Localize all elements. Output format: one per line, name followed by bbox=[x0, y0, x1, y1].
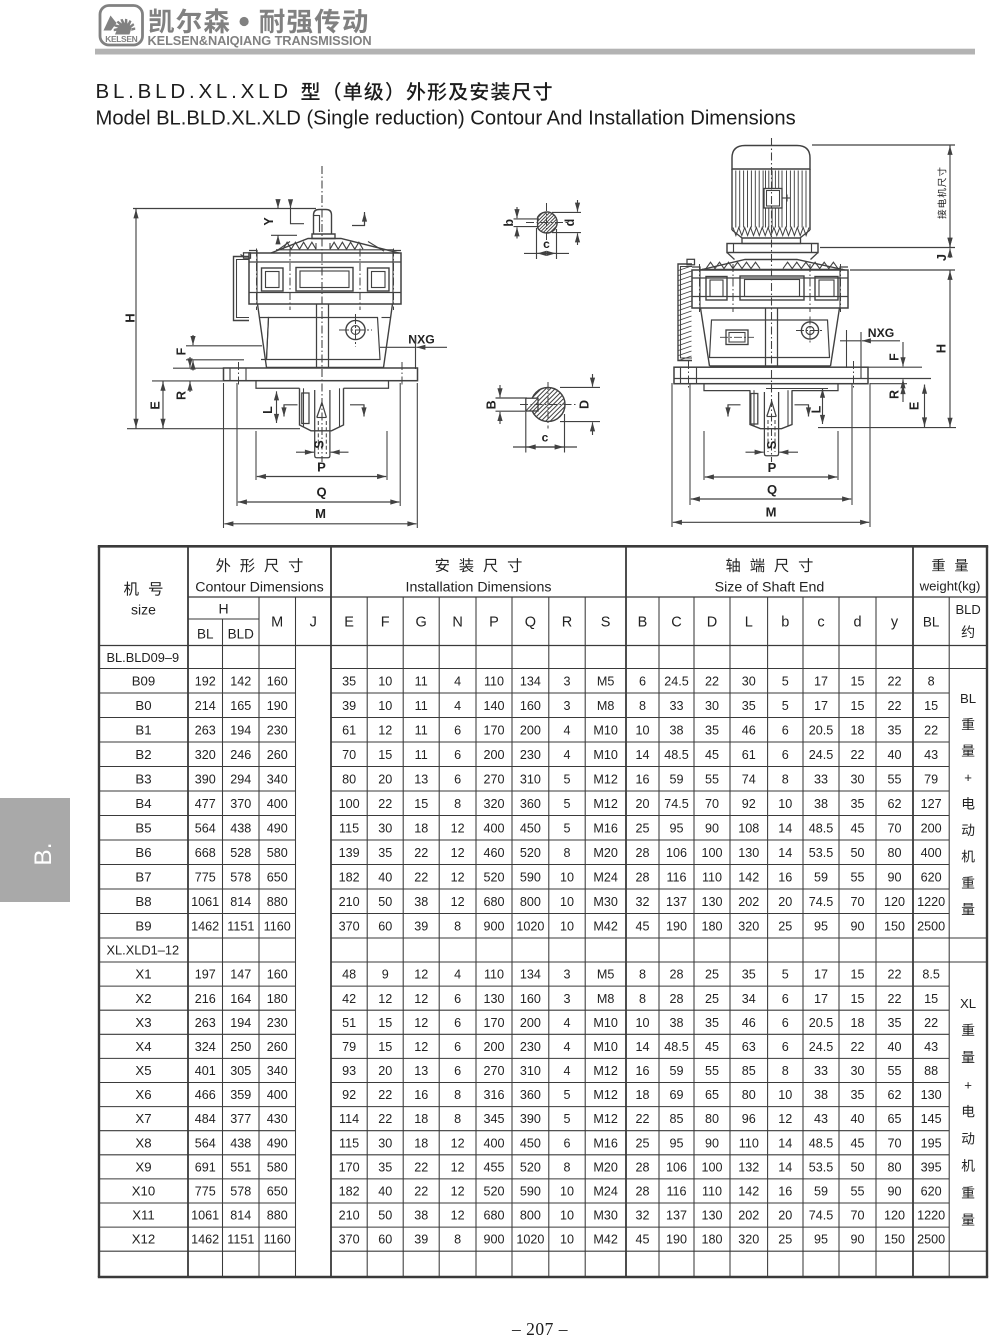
svg-text:45: 45 bbox=[635, 1233, 649, 1247]
svg-text:160: 160 bbox=[267, 674, 288, 688]
svg-text:8: 8 bbox=[782, 772, 789, 786]
svg-text:E: E bbox=[344, 615, 354, 631]
svg-text:M16: M16 bbox=[593, 1136, 618, 1150]
svg-text:N: N bbox=[452, 615, 462, 631]
svg-text:43: 43 bbox=[924, 1040, 938, 1054]
svg-text:M12: M12 bbox=[593, 772, 618, 786]
svg-text:13: 13 bbox=[414, 1064, 428, 1078]
svg-text:79: 79 bbox=[924, 772, 938, 786]
svg-text:B2: B2 bbox=[135, 747, 151, 762]
svg-text:130: 130 bbox=[738, 846, 759, 860]
svg-text:9: 9 bbox=[382, 968, 389, 982]
svg-text:55: 55 bbox=[705, 1064, 719, 1078]
svg-text:477: 477 bbox=[195, 797, 216, 811]
svg-text:10: 10 bbox=[635, 1016, 649, 1030]
svg-text:8: 8 bbox=[639, 699, 646, 713]
svg-text:590: 590 bbox=[520, 870, 541, 884]
svg-text:190: 190 bbox=[267, 699, 288, 713]
svg-text:520: 520 bbox=[520, 1160, 541, 1174]
svg-text:110: 110 bbox=[484, 968, 504, 982]
svg-text:5: 5 bbox=[782, 968, 789, 982]
svg-text:30: 30 bbox=[850, 772, 864, 786]
svg-text:5: 5 bbox=[782, 674, 789, 688]
svg-text:194: 194 bbox=[230, 1016, 251, 1030]
svg-text:+: + bbox=[964, 770, 972, 785]
svg-text:45: 45 bbox=[705, 1040, 719, 1054]
svg-text:127: 127 bbox=[921, 797, 942, 811]
svg-text:39: 39 bbox=[414, 1233, 428, 1247]
svg-text:40: 40 bbox=[378, 1185, 392, 1199]
svg-text:59: 59 bbox=[814, 870, 828, 884]
svg-text:D: D bbox=[578, 400, 592, 409]
svg-text:15: 15 bbox=[850, 992, 864, 1006]
svg-text:230: 230 bbox=[267, 723, 288, 737]
svg-text:B: B bbox=[638, 615, 648, 631]
svg-text:160: 160 bbox=[520, 992, 541, 1006]
svg-text:370: 370 bbox=[230, 797, 251, 811]
svg-text:25: 25 bbox=[635, 1136, 649, 1150]
svg-text:40: 40 bbox=[378, 870, 392, 884]
svg-text:22: 22 bbox=[924, 723, 938, 737]
svg-text:2500: 2500 bbox=[917, 1233, 945, 1247]
svg-text:6: 6 bbox=[454, 723, 461, 737]
svg-text:150: 150 bbox=[884, 919, 905, 933]
svg-text:28: 28 bbox=[635, 1160, 649, 1174]
svg-text:14: 14 bbox=[778, 1160, 792, 1174]
svg-text:X10: X10 bbox=[132, 1184, 155, 1199]
svg-text:38: 38 bbox=[669, 723, 683, 737]
svg-text:200: 200 bbox=[520, 1016, 541, 1030]
svg-text:6: 6 bbox=[454, 748, 461, 762]
svg-text:61: 61 bbox=[342, 723, 356, 737]
svg-text:110: 110 bbox=[484, 674, 504, 688]
svg-text:Size of Shaft End: Size of Shaft End bbox=[715, 580, 825, 596]
svg-text:46: 46 bbox=[742, 1016, 756, 1030]
svg-text:B1: B1 bbox=[135, 722, 151, 737]
svg-text:15: 15 bbox=[924, 992, 938, 1006]
svg-text:130: 130 bbox=[701, 1209, 722, 1223]
svg-text:70: 70 bbox=[850, 895, 864, 909]
svg-text:BL: BL bbox=[960, 691, 976, 706]
svg-text:182: 182 bbox=[339, 870, 360, 884]
svg-text:580: 580 bbox=[267, 846, 288, 860]
svg-text:528: 528 bbox=[230, 846, 251, 860]
svg-text:P: P bbox=[489, 615, 499, 631]
svg-text:200: 200 bbox=[520, 723, 541, 737]
svg-text:weight(kg): weight(kg) bbox=[919, 579, 981, 594]
svg-text:200: 200 bbox=[483, 1040, 504, 1054]
svg-text:M10: M10 bbox=[593, 1016, 618, 1030]
svg-text:460: 460 bbox=[483, 846, 504, 860]
svg-text:814: 814 bbox=[230, 895, 251, 909]
svg-text:L: L bbox=[745, 615, 753, 631]
svg-text:X2: X2 bbox=[135, 991, 151, 1006]
svg-text:M: M bbox=[271, 615, 283, 631]
svg-text:35: 35 bbox=[887, 1016, 901, 1030]
svg-text:90: 90 bbox=[705, 1136, 719, 1150]
svg-text:M20: M20 bbox=[593, 1160, 618, 1174]
svg-text:12: 12 bbox=[414, 968, 428, 982]
svg-text:4: 4 bbox=[563, 1064, 570, 1078]
svg-text:95: 95 bbox=[669, 821, 683, 835]
svg-text:50: 50 bbox=[850, 1160, 864, 1174]
svg-text:1220: 1220 bbox=[917, 1209, 945, 1223]
svg-text:10: 10 bbox=[560, 1233, 574, 1247]
svg-text:14: 14 bbox=[778, 821, 792, 835]
svg-text:35: 35 bbox=[850, 797, 864, 811]
svg-text:Q: Q bbox=[316, 485, 326, 500]
svg-text:400: 400 bbox=[483, 821, 504, 835]
svg-text:59: 59 bbox=[669, 1064, 683, 1078]
svg-text:490: 490 bbox=[267, 821, 288, 835]
svg-text:484: 484 bbox=[195, 1112, 216, 1126]
svg-text:R: R bbox=[888, 390, 902, 399]
svg-text:79: 79 bbox=[342, 1040, 356, 1054]
svg-text:96: 96 bbox=[742, 1112, 756, 1126]
svg-text:30: 30 bbox=[850, 1064, 864, 1078]
svg-text:95: 95 bbox=[669, 1136, 683, 1150]
svg-text:400: 400 bbox=[483, 1136, 504, 1150]
svg-text:6: 6 bbox=[454, 992, 461, 1006]
svg-text:430: 430 bbox=[267, 1112, 288, 1126]
svg-text:45: 45 bbox=[850, 1136, 864, 1150]
svg-text:38: 38 bbox=[669, 1016, 683, 1030]
svg-text:20: 20 bbox=[778, 1209, 792, 1223]
svg-text:S: S bbox=[765, 441, 779, 449]
svg-text:BL.BLD09–9: BL.BLD09–9 bbox=[107, 650, 180, 665]
svg-text:145: 145 bbox=[921, 1112, 942, 1126]
svg-text:45: 45 bbox=[850, 821, 864, 835]
svg-text:197: 197 bbox=[195, 968, 216, 982]
svg-text:210: 210 bbox=[339, 895, 360, 909]
svg-text:20.5: 20.5 bbox=[809, 723, 834, 737]
svg-text:P: P bbox=[317, 460, 326, 475]
svg-text:24.5: 24.5 bbox=[809, 748, 834, 762]
svg-text:93: 93 bbox=[342, 1064, 356, 1078]
svg-text:580: 580 bbox=[267, 1160, 288, 1174]
svg-text:4: 4 bbox=[454, 674, 461, 688]
svg-text:24.5: 24.5 bbox=[664, 674, 689, 688]
svg-text:10: 10 bbox=[560, 1209, 574, 1223]
svg-text:45: 45 bbox=[705, 748, 719, 762]
svg-text:294: 294 bbox=[230, 772, 251, 786]
svg-text:48.5: 48.5 bbox=[809, 1136, 834, 1150]
svg-text:11: 11 bbox=[415, 699, 428, 713]
svg-text:M8: M8 bbox=[597, 992, 615, 1006]
svg-text:800: 800 bbox=[520, 895, 541, 909]
svg-text:Model BL.BLD.XL.XLD (Single re: Model BL.BLD.XL.XLD (Single reduction) C… bbox=[96, 108, 796, 130]
svg-text:1220: 1220 bbox=[917, 895, 945, 909]
svg-text:22: 22 bbox=[887, 968, 901, 982]
svg-text:22: 22 bbox=[705, 674, 719, 688]
svg-text:4: 4 bbox=[563, 723, 570, 737]
svg-text:520: 520 bbox=[520, 846, 541, 860]
svg-text:110: 110 bbox=[702, 1185, 722, 1199]
svg-text:30: 30 bbox=[378, 821, 392, 835]
svg-text:35: 35 bbox=[742, 699, 756, 713]
svg-text:10: 10 bbox=[560, 870, 574, 884]
svg-text:114: 114 bbox=[339, 1112, 359, 1126]
svg-text:246: 246 bbox=[230, 748, 251, 762]
svg-text:43: 43 bbox=[814, 1112, 828, 1126]
svg-text:214: 214 bbox=[195, 699, 216, 713]
svg-text:BL: BL bbox=[923, 615, 940, 630]
svg-text:43: 43 bbox=[924, 748, 938, 762]
svg-text:22: 22 bbox=[850, 1040, 864, 1054]
svg-text:18: 18 bbox=[414, 1112, 428, 1126]
svg-text:48.5: 48.5 bbox=[809, 821, 834, 835]
svg-text:370: 370 bbox=[339, 919, 360, 933]
svg-text:137: 137 bbox=[666, 1209, 687, 1223]
svg-text:25: 25 bbox=[705, 968, 719, 982]
svg-text:5: 5 bbox=[563, 1112, 570, 1126]
svg-text:20: 20 bbox=[635, 797, 649, 811]
svg-text:55: 55 bbox=[887, 772, 901, 786]
svg-text:61: 61 bbox=[742, 748, 756, 762]
svg-text:55: 55 bbox=[887, 1064, 901, 1078]
svg-text:14: 14 bbox=[778, 1136, 792, 1150]
svg-text:377: 377 bbox=[230, 1112, 251, 1126]
svg-text:6: 6 bbox=[782, 1040, 789, 1054]
svg-text:6: 6 bbox=[782, 992, 789, 1006]
svg-text:90: 90 bbox=[850, 919, 864, 933]
svg-text:KELSEN&NAIQIANG TRANSMISSION: KELSEN&NAIQIANG TRANSMISSION bbox=[148, 33, 372, 48]
svg-text:359: 359 bbox=[230, 1088, 251, 1102]
svg-text:310: 310 bbox=[520, 1064, 541, 1078]
svg-text:10: 10 bbox=[560, 919, 574, 933]
svg-text:620: 620 bbox=[921, 1185, 942, 1199]
svg-text:130: 130 bbox=[921, 1088, 942, 1102]
svg-text:13: 13 bbox=[414, 772, 428, 786]
svg-text:J: J bbox=[310, 615, 317, 631]
svg-text:320: 320 bbox=[738, 919, 759, 933]
svg-text:880: 880 bbox=[267, 1209, 288, 1223]
svg-text:100: 100 bbox=[339, 797, 360, 811]
svg-text:L: L bbox=[261, 406, 275, 414]
svg-text:20.5: 20.5 bbox=[809, 1016, 834, 1030]
svg-text:180: 180 bbox=[701, 1233, 722, 1247]
svg-text:70: 70 bbox=[850, 1209, 864, 1223]
svg-text:– 207 –: – 207 – bbox=[511, 1319, 568, 1339]
svg-text:16: 16 bbox=[635, 772, 649, 786]
svg-text:60: 60 bbox=[378, 1233, 392, 1247]
svg-text:92: 92 bbox=[742, 797, 756, 811]
svg-text:M12: M12 bbox=[593, 1112, 618, 1126]
svg-text:46: 46 bbox=[742, 723, 756, 737]
svg-text:14: 14 bbox=[635, 1040, 649, 1054]
svg-text:15: 15 bbox=[378, 748, 392, 762]
svg-text:38: 38 bbox=[814, 1088, 828, 1102]
svg-text:263: 263 bbox=[195, 723, 216, 737]
svg-text:40: 40 bbox=[887, 1040, 901, 1054]
svg-text:6: 6 bbox=[454, 772, 461, 786]
svg-text:B.: B. bbox=[30, 842, 57, 865]
svg-text:85: 85 bbox=[669, 1112, 683, 1126]
svg-text:25: 25 bbox=[778, 1233, 792, 1247]
svg-text:17: 17 bbox=[814, 992, 828, 1006]
svg-text:8: 8 bbox=[454, 919, 461, 933]
svg-text:6: 6 bbox=[454, 1064, 461, 1078]
svg-text:12: 12 bbox=[451, 1209, 465, 1223]
svg-text:270: 270 bbox=[483, 1064, 504, 1078]
svg-text:340: 340 bbox=[267, 1064, 288, 1078]
svg-text:70: 70 bbox=[887, 821, 901, 835]
svg-text:74.5: 74.5 bbox=[809, 895, 834, 909]
svg-text:1020: 1020 bbox=[516, 1233, 544, 1247]
svg-text:d: d bbox=[563, 219, 577, 227]
svg-text:10: 10 bbox=[635, 723, 649, 737]
svg-text:115: 115 bbox=[339, 1136, 359, 1150]
svg-text:395: 395 bbox=[921, 1160, 942, 1174]
svg-text:B8: B8 bbox=[135, 894, 151, 909]
svg-text:775: 775 bbox=[195, 1185, 216, 1199]
svg-text:Y: Y bbox=[262, 217, 276, 226]
svg-text:8: 8 bbox=[454, 797, 461, 811]
svg-text:5: 5 bbox=[563, 821, 570, 835]
svg-text:22: 22 bbox=[850, 748, 864, 762]
svg-text:12: 12 bbox=[414, 992, 428, 1006]
svg-text:Contour Dimensions: Contour Dimensions bbox=[195, 580, 324, 596]
svg-text:M30: M30 bbox=[593, 895, 618, 909]
svg-text:305: 305 bbox=[230, 1064, 251, 1078]
svg-text:4: 4 bbox=[454, 699, 461, 713]
svg-text:XL.XLD1–12: XL.XLD1–12 bbox=[107, 942, 180, 957]
svg-text:22: 22 bbox=[414, 870, 428, 884]
svg-text:270: 270 bbox=[483, 772, 504, 786]
svg-text:139: 139 bbox=[339, 846, 360, 860]
svg-text:80: 80 bbox=[742, 1088, 756, 1102]
svg-text:15: 15 bbox=[924, 699, 938, 713]
svg-text:520: 520 bbox=[483, 1185, 504, 1199]
svg-text:6: 6 bbox=[639, 674, 646, 688]
svg-text:51: 51 bbox=[342, 1016, 356, 1030]
svg-text:680: 680 bbox=[483, 895, 504, 909]
svg-text:74.5: 74.5 bbox=[809, 1209, 834, 1223]
svg-text:12: 12 bbox=[778, 1112, 792, 1126]
svg-text:142: 142 bbox=[738, 1185, 759, 1199]
svg-text:2500: 2500 bbox=[917, 919, 945, 933]
svg-text:35: 35 bbox=[342, 674, 356, 688]
svg-text:110: 110 bbox=[739, 1136, 759, 1150]
svg-text:1020: 1020 bbox=[516, 919, 544, 933]
svg-text:33: 33 bbox=[814, 1064, 828, 1078]
svg-text:6: 6 bbox=[782, 723, 789, 737]
svg-text:NXG: NXG bbox=[868, 326, 894, 340]
svg-text:Q: Q bbox=[767, 482, 777, 497]
svg-text:450: 450 bbox=[520, 821, 541, 835]
svg-text:M30: M30 bbox=[593, 1209, 618, 1223]
svg-text:X4: X4 bbox=[135, 1039, 151, 1054]
svg-text:12: 12 bbox=[451, 846, 465, 860]
svg-text:92: 92 bbox=[342, 1088, 356, 1102]
svg-text:11: 11 bbox=[415, 748, 428, 762]
svg-text:62: 62 bbox=[887, 1088, 901, 1102]
svg-text:310: 310 bbox=[520, 772, 541, 786]
svg-text:D: D bbox=[707, 615, 717, 631]
svg-text:10: 10 bbox=[778, 1088, 792, 1102]
svg-text:115: 115 bbox=[339, 821, 359, 835]
svg-text:32: 32 bbox=[635, 1209, 649, 1223]
svg-text:90: 90 bbox=[887, 1185, 901, 1199]
svg-text:40: 40 bbox=[850, 1112, 864, 1126]
svg-text:22: 22 bbox=[414, 1185, 428, 1199]
svg-text:M: M bbox=[766, 505, 777, 520]
svg-text:12: 12 bbox=[378, 723, 392, 737]
svg-text:B3: B3 bbox=[135, 771, 151, 786]
svg-text:668: 668 bbox=[195, 846, 216, 860]
svg-text:1061: 1061 bbox=[191, 1209, 219, 1223]
svg-text:28: 28 bbox=[669, 968, 683, 982]
svg-text:B6: B6 bbox=[135, 845, 151, 860]
svg-text:35: 35 bbox=[378, 1160, 392, 1174]
svg-text:900: 900 bbox=[483, 919, 504, 933]
svg-text:250: 250 bbox=[230, 1040, 251, 1054]
svg-text:230: 230 bbox=[520, 748, 541, 762]
svg-text:401: 401 bbox=[195, 1064, 216, 1078]
svg-text:22: 22 bbox=[378, 1088, 392, 1102]
svg-text:390: 390 bbox=[520, 1112, 541, 1126]
svg-text:25: 25 bbox=[635, 821, 649, 835]
svg-text:65: 65 bbox=[705, 1088, 719, 1102]
svg-text:28: 28 bbox=[669, 992, 683, 1006]
svg-text:88: 88 bbox=[924, 1064, 938, 1078]
svg-text:32: 32 bbox=[635, 895, 649, 909]
svg-text:15: 15 bbox=[414, 797, 428, 811]
svg-text:170: 170 bbox=[339, 1160, 360, 1174]
svg-text:80: 80 bbox=[887, 1160, 901, 1174]
svg-text:M42: M42 bbox=[593, 919, 618, 933]
svg-text:G: G bbox=[416, 615, 427, 631]
svg-text:1160: 1160 bbox=[264, 1233, 291, 1247]
svg-text:60: 60 bbox=[378, 919, 392, 933]
svg-text:192: 192 bbox=[195, 674, 216, 688]
svg-text:320: 320 bbox=[483, 797, 504, 811]
svg-text:35: 35 bbox=[742, 968, 756, 982]
svg-text:12: 12 bbox=[378, 992, 392, 1006]
svg-text:30: 30 bbox=[378, 1136, 392, 1150]
svg-text:80: 80 bbox=[705, 1112, 719, 1126]
svg-text:69: 69 bbox=[669, 1088, 683, 1102]
svg-text:400: 400 bbox=[267, 1088, 288, 1102]
svg-text:455: 455 bbox=[483, 1160, 504, 1174]
svg-text:11: 11 bbox=[415, 674, 428, 688]
svg-text:34: 34 bbox=[742, 992, 756, 1006]
svg-text:70: 70 bbox=[705, 797, 719, 811]
svg-text:45: 45 bbox=[635, 919, 649, 933]
svg-text:120: 120 bbox=[884, 895, 905, 909]
svg-text:200: 200 bbox=[921, 821, 942, 835]
svg-text:190: 190 bbox=[666, 919, 687, 933]
svg-text:650: 650 bbox=[267, 870, 288, 884]
svg-text:B7: B7 bbox=[135, 869, 151, 884]
svg-text:B9: B9 bbox=[135, 918, 151, 933]
svg-text:M42: M42 bbox=[593, 1233, 618, 1247]
svg-text:18: 18 bbox=[414, 821, 428, 835]
svg-text:140: 140 bbox=[483, 699, 504, 713]
svg-text:22: 22 bbox=[378, 1112, 392, 1126]
svg-text:15: 15 bbox=[378, 1040, 392, 1054]
svg-text:38: 38 bbox=[814, 797, 828, 811]
svg-text:400: 400 bbox=[921, 846, 942, 860]
svg-text:12: 12 bbox=[451, 1160, 465, 1174]
svg-text:130: 130 bbox=[701, 895, 722, 909]
svg-text:324: 324 bbox=[195, 1040, 216, 1054]
svg-text:134: 134 bbox=[520, 674, 541, 688]
svg-text:12: 12 bbox=[414, 1040, 428, 1054]
svg-text:30: 30 bbox=[742, 674, 756, 688]
svg-text:55: 55 bbox=[850, 870, 864, 884]
svg-text:14: 14 bbox=[635, 748, 649, 762]
